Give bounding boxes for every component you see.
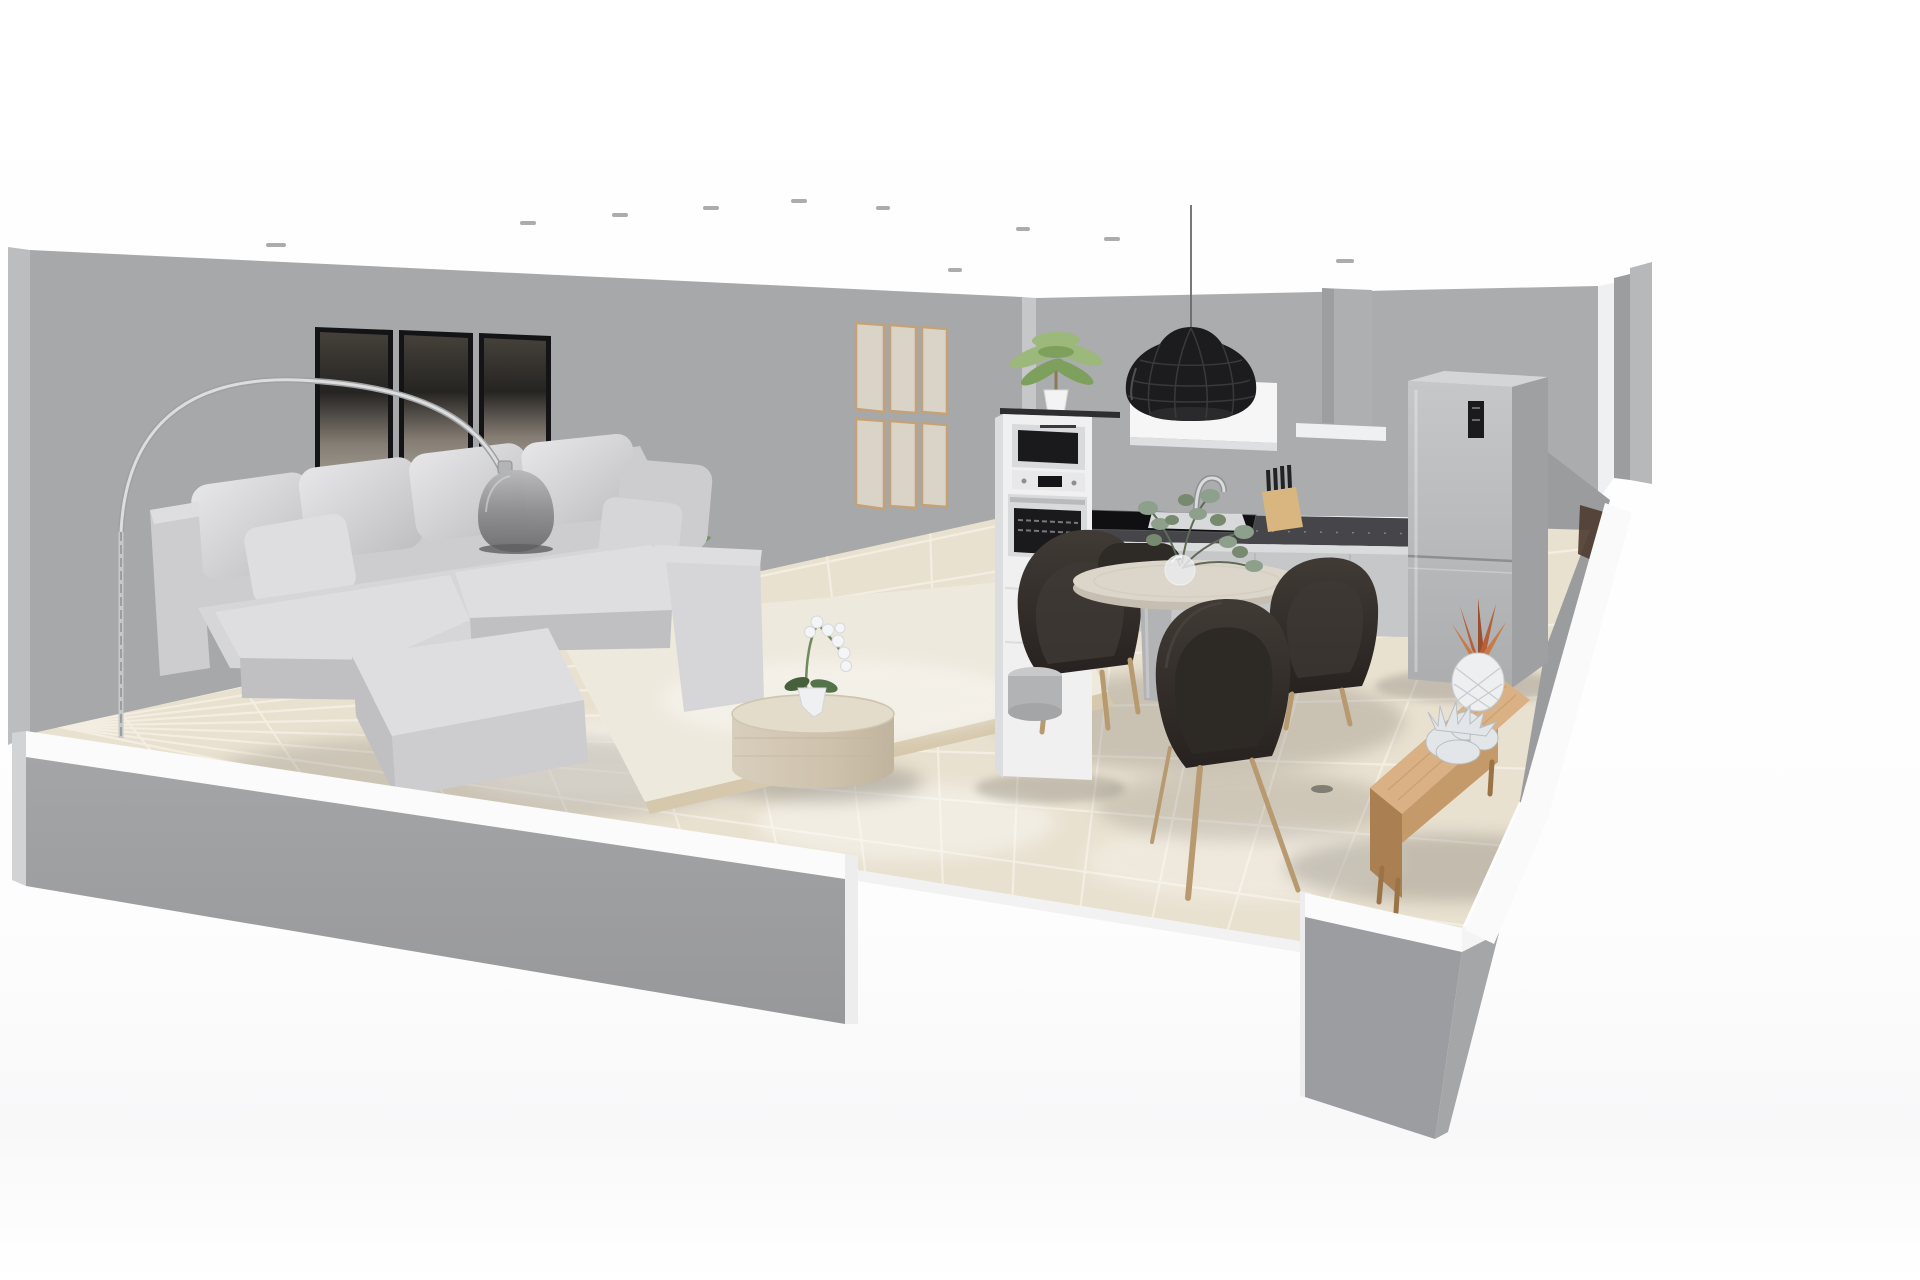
print-frame [890, 325, 916, 413]
ceiling-light-mark [266, 243, 286, 247]
render-canvas[interactable] [0, 0, 1920, 1280]
microwave-glass [1018, 430, 1078, 464]
print-frame [856, 419, 884, 509]
tower-left-side [995, 414, 1003, 778]
right-wall-end-far [1630, 262, 1652, 484]
ceiling-light-mark [612, 213, 628, 217]
ceiling-light-mark [520, 221, 536, 225]
right-wall-end-mid [1614, 274, 1630, 480]
front-left-wall-cap [12, 731, 26, 886]
print-frame [856, 323, 884, 412]
left-wall-edge [8, 247, 30, 745]
ceiling-light-mark [1016, 227, 1030, 231]
print-frame [922, 423, 947, 507]
ceiling-light-mark [876, 206, 890, 210]
ceiling-light-mark [948, 268, 962, 272]
ceiling-light-mark [703, 206, 719, 210]
fridge-side [1512, 377, 1548, 688]
lamp-dome [478, 470, 554, 552]
ceiling-light-mark [1104, 237, 1120, 241]
print-frame [922, 327, 947, 414]
ceiling-light-mark [791, 199, 807, 203]
oven-display [1038, 476, 1062, 487]
ceiling-light-mark [1336, 259, 1354, 263]
fridge-front [1408, 381, 1512, 688]
doorway-left-jamb [845, 854, 858, 1024]
glass-vase [1165, 555, 1195, 585]
right-wall-end-cap [1598, 283, 1614, 500]
print-frame [890, 421, 916, 508]
